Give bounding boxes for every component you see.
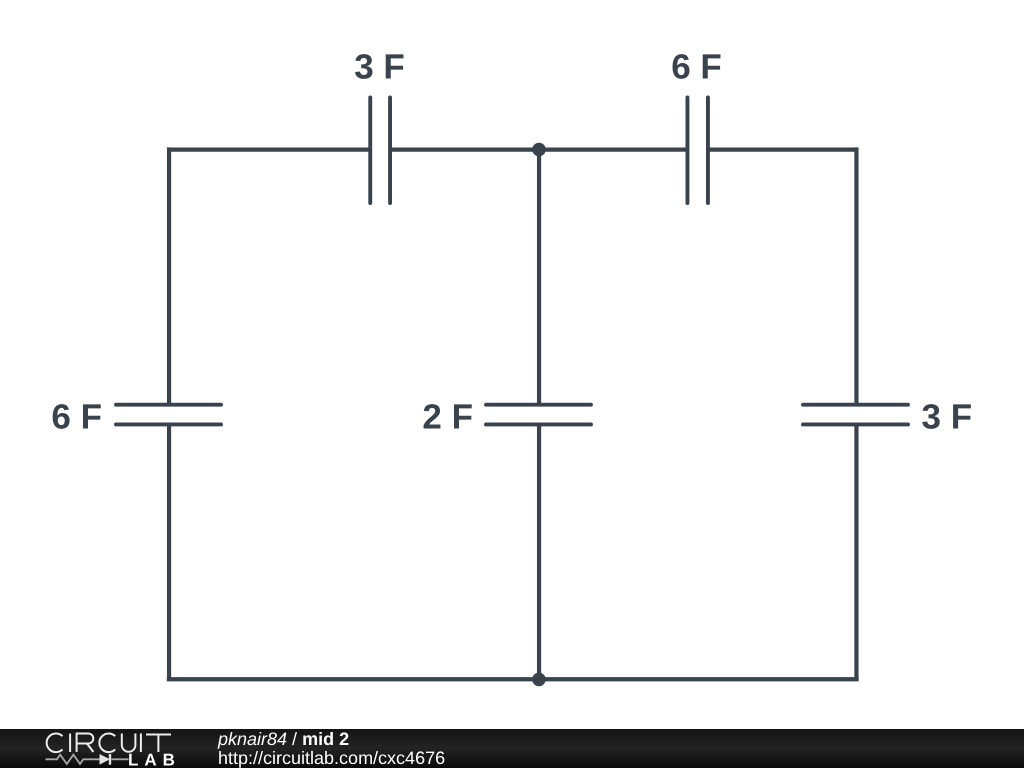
svg-text:pknair84 / mid 2: pknair84 / mid 2 [217,729,349,749]
svg-text:2 F: 2 F [422,397,473,436]
svg-text:3 F: 3 F [922,397,973,436]
svg-text:3 F: 3 F [354,47,405,86]
svg-text:http://circuitlab.com/cxc4676: http://circuitlab.com/cxc4676 [218,748,445,768]
svg-text:LAB: LAB [128,750,181,768]
svg-text:6 F: 6 F [51,397,102,436]
svg-text:6 F: 6 F [671,47,722,86]
